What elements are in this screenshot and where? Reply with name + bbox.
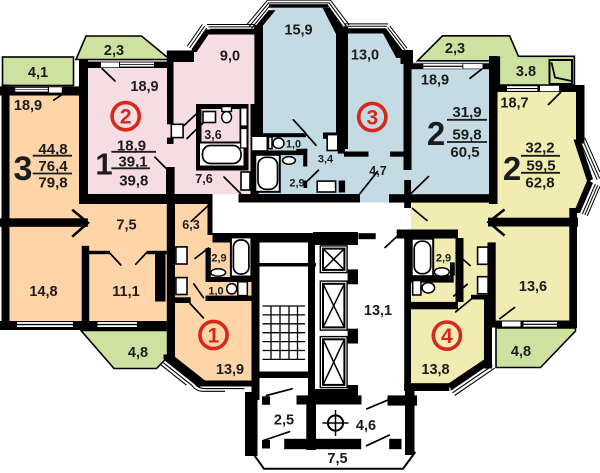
svg-text:1,0: 1,0 (286, 139, 301, 151)
svg-text:4,8: 4,8 (511, 344, 531, 360)
svg-text:13,6: 13,6 (519, 279, 547, 295)
svg-text:13,9: 13,9 (216, 362, 244, 378)
svg-text:39,8: 39,8 (119, 173, 148, 190)
svg-text:13,1: 13,1 (364, 303, 392, 319)
svg-text:18,9: 18,9 (421, 73, 449, 89)
svg-text:13,8: 13,8 (421, 362, 449, 378)
svg-text:4,1: 4,1 (28, 65, 48, 81)
svg-text:9,0: 9,0 (220, 49, 240, 65)
svg-text:7,5: 7,5 (116, 218, 136, 234)
svg-text:7,5: 7,5 (327, 451, 347, 467)
svg-text:18,9: 18,9 (14, 98, 42, 114)
svg-text:2,9: 2,9 (436, 253, 451, 265)
svg-text:4: 4 (441, 325, 453, 348)
svg-text:3: 3 (366, 107, 378, 130)
svg-text:2: 2 (427, 115, 445, 152)
svg-text:4,7: 4,7 (369, 164, 386, 178)
svg-text:1: 1 (95, 147, 112, 182)
svg-text:76,4: 76,4 (38, 158, 68, 175)
svg-text:7,6: 7,6 (195, 172, 212, 186)
svg-text:11,1: 11,1 (112, 284, 139, 300)
svg-text:59,8: 59,8 (452, 127, 481, 144)
svg-text:2,3: 2,3 (445, 41, 465, 57)
svg-text:4,6: 4,6 (356, 418, 376, 434)
svg-text:31,9: 31,9 (452, 104, 481, 121)
svg-text:60,5: 60,5 (450, 144, 479, 161)
svg-text:18,7: 18,7 (500, 96, 528, 112)
svg-text:3,6: 3,6 (204, 128, 221, 142)
svg-text:15,9: 15,9 (284, 23, 312, 39)
svg-text:2: 2 (503, 150, 521, 187)
svg-text:79,8: 79,8 (38, 175, 67, 192)
svg-text:14,8: 14,8 (29, 284, 57, 300)
svg-text:13,0: 13,0 (351, 48, 379, 64)
svg-text:18,9: 18,9 (130, 79, 158, 95)
svg-text:1: 1 (208, 325, 220, 348)
svg-text:6,3: 6,3 (182, 218, 199, 232)
svg-text:3,4: 3,4 (318, 154, 334, 166)
svg-text:32,2: 32,2 (525, 140, 554, 157)
svg-text:3: 3 (14, 150, 33, 188)
svg-text:2,5: 2,5 (274, 413, 294, 429)
svg-text:3.8: 3.8 (516, 64, 536, 80)
svg-text:1,0: 1,0 (208, 286, 223, 298)
svg-text:2: 2 (120, 106, 132, 129)
svg-text:2,3: 2,3 (104, 43, 124, 59)
svg-text:4,8: 4,8 (128, 345, 148, 361)
svg-text:2,9: 2,9 (289, 178, 304, 190)
svg-text:62,8: 62,8 (525, 175, 554, 192)
svg-text:2,9: 2,9 (211, 253, 226, 265)
